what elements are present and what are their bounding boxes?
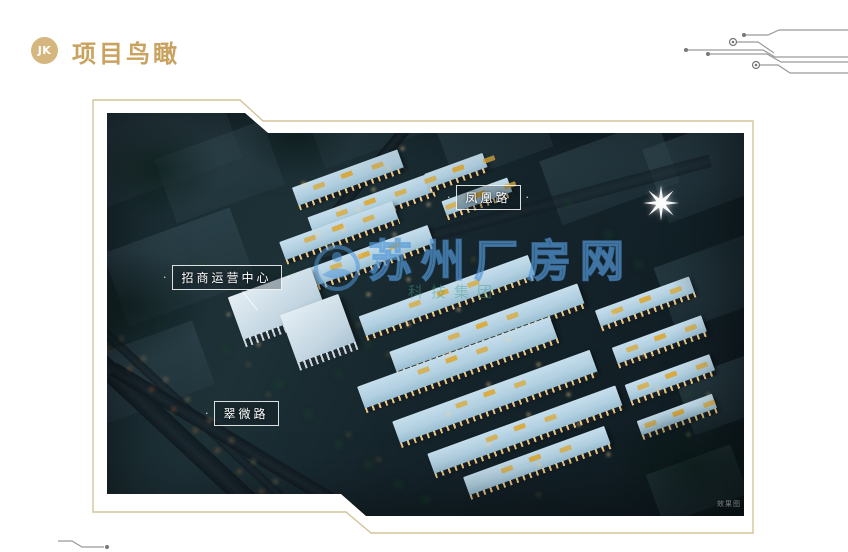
page-title: 项目鸟瞰 <box>72 34 180 69</box>
label-phoenix-road: · 凤凰路 · <box>447 185 529 210</box>
jk-logo-text: JK <box>38 44 52 57</box>
label-dot: · <box>447 191 451 204</box>
label-dot: · <box>163 271 167 284</box>
operations-center-label-text: 招商运营中心 <box>172 265 282 290</box>
aerial-render-image: · 凤凰路 · · 招商运营中心 · · 翠微路 苏州厂房网 科技集团 <box>107 113 744 516</box>
circuit-lines-decor-bottom <box>58 538 128 552</box>
phoenix-road-label-text: 凤凰路 <box>456 185 521 210</box>
label-cuiwei-road: · 翠微路 <box>205 401 279 426</box>
circuit-lines-decor-top <box>628 26 848 88</box>
label-dot: · <box>287 271 291 284</box>
jk-logo-badge: JK <box>31 37 58 64</box>
render-corner-note: 效果图 <box>717 499 741 509</box>
eight-point-star-icon <box>641 183 681 223</box>
label-dot: · <box>526 191 530 204</box>
slide: JK 项目鸟瞰 <box>0 0 848 552</box>
dark-forest-overlay <box>107 113 744 516</box>
label-dot: · <box>205 407 209 420</box>
label-operations-center: · 招商运营中心 · <box>163 265 290 290</box>
cuiwei-road-label-text: 翠微路 <box>214 401 279 426</box>
